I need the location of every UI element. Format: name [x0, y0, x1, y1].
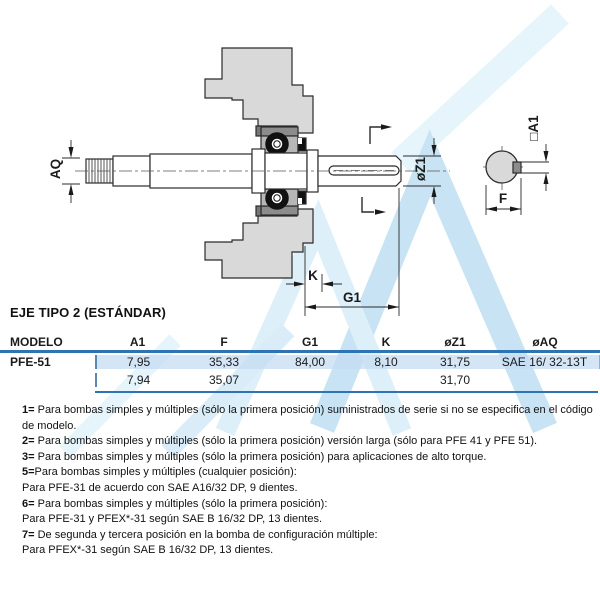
table-bottom-rule — [95, 391, 598, 393]
cell-value: 35,07 — [180, 373, 268, 387]
footnote-line: 3= Para bombas simples y múltiples (sólo… — [22, 450, 600, 466]
cell-value: 35,33 — [180, 355, 268, 369]
pump-housing-bottom — [205, 209, 313, 278]
cell-value: 7,94 — [95, 373, 180, 387]
key — [513, 162, 521, 173]
column-header-3: G1 — [268, 335, 352, 349]
shaft-end-view — [483, 146, 549, 190]
cell-value: 7,95 — [95, 355, 180, 369]
column-header-0: MODELO — [0, 335, 95, 349]
section-arrow-top — [370, 127, 381, 144]
cell-value: 31,75 — [420, 355, 490, 369]
column-header-4: K — [352, 335, 420, 349]
shaft-technical-drawing: AQ øZ1 □A1 F K G1 — [0, 0, 600, 330]
footnote-line: 2= Para bombas simples y múltiples (sólo… — [22, 434, 600, 450]
cell-value: 31,70 — [420, 373, 490, 387]
footnote-line: 1= Para bombas simples y múltiples (sólo… — [22, 403, 600, 434]
column-header-6: øAQ — [490, 335, 600, 349]
footnote-line: 7= De segunda y tercera posición en la b… — [22, 528, 600, 544]
footnotes: 1= Para bombas simples y múltiples (sólo… — [22, 403, 600, 559]
label-z1: øZ1 — [413, 157, 428, 181]
dimensions-table: MODELOA1FG1KøZ1øAQ PFE-517,9535,3384,008… — [0, 333, 600, 389]
cell-value: SAE 16/ 32-13T — [490, 355, 600, 369]
cell-value: 84,00 — [268, 355, 352, 369]
cell-value: 8,10 — [352, 355, 420, 369]
label-aq: AQ — [48, 159, 63, 179]
table-body: PFE-517,9535,3384,008,1031,75SAE 16/ 32-… — [0, 353, 600, 389]
label-f: F — [499, 191, 507, 206]
column-header-2: F — [180, 335, 268, 349]
table-header-row: MODELOA1FG1KøZ1øAQ — [0, 333, 600, 350]
section-arrow-bottom — [362, 197, 374, 212]
label-a1: □A1 — [526, 115, 541, 141]
footnote-line: 6= Para bombas simples y múltiples (sólo… — [22, 497, 600, 513]
label-k: K — [308, 268, 318, 283]
footnote-line: Para PFEX*-31 según SAE B 16/32 DP, 13 d… — [22, 543, 600, 559]
catalog-page: AQ øZ1 □A1 F K G1 EJE TIPO 2 (ESTÁNDAR) … — [0, 0, 600, 600]
cell-modelo: PFE-51 — [0, 355, 95, 369]
shaft-side-view — [86, 149, 401, 193]
column-header-1: A1 — [95, 335, 180, 349]
footnote-line: Para PFE-31 de acuerdo con SAE A16/32 DP… — [22, 481, 600, 497]
column-header-5: øZ1 — [420, 335, 490, 349]
table-row: 7,9435,0731,70 — [0, 371, 600, 389]
pump-housing-top — [205, 48, 313, 133]
footnote-line: 5=Para bombas simples y múltiples (cualq… — [22, 465, 600, 481]
table-row: PFE-517,9535,3384,008,1031,75SAE 16/ 32-… — [0, 353, 600, 371]
label-g1: G1 — [343, 290, 362, 305]
section-title: EJE TIPO 2 (ESTÁNDAR) — [10, 305, 166, 320]
footnote-line: Para PFE-31 y PFEX*-31 según SAE B 16/32… — [22, 512, 600, 528]
